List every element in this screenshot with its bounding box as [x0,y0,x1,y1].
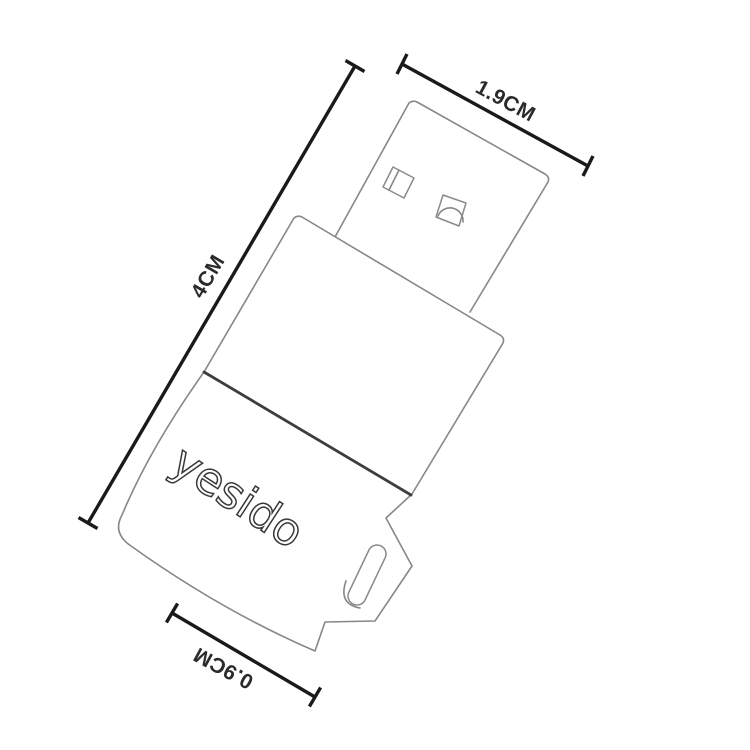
dimension-bottom-label: 0.9CM [190,642,258,693]
usb-flash-drive-line-drawing: yesido 1.9CM 4CM 0.9CM [0,0,750,750]
product-dimension-diagram: yesido 1.9CM 4CM 0.9CM [0,0,750,750]
dimension-bottom-tick-end [309,688,320,707]
dimension-bottom-tick-start [166,604,177,623]
dimension-left-tick-start [346,61,365,72]
dimension-left-tick-end [79,518,98,529]
